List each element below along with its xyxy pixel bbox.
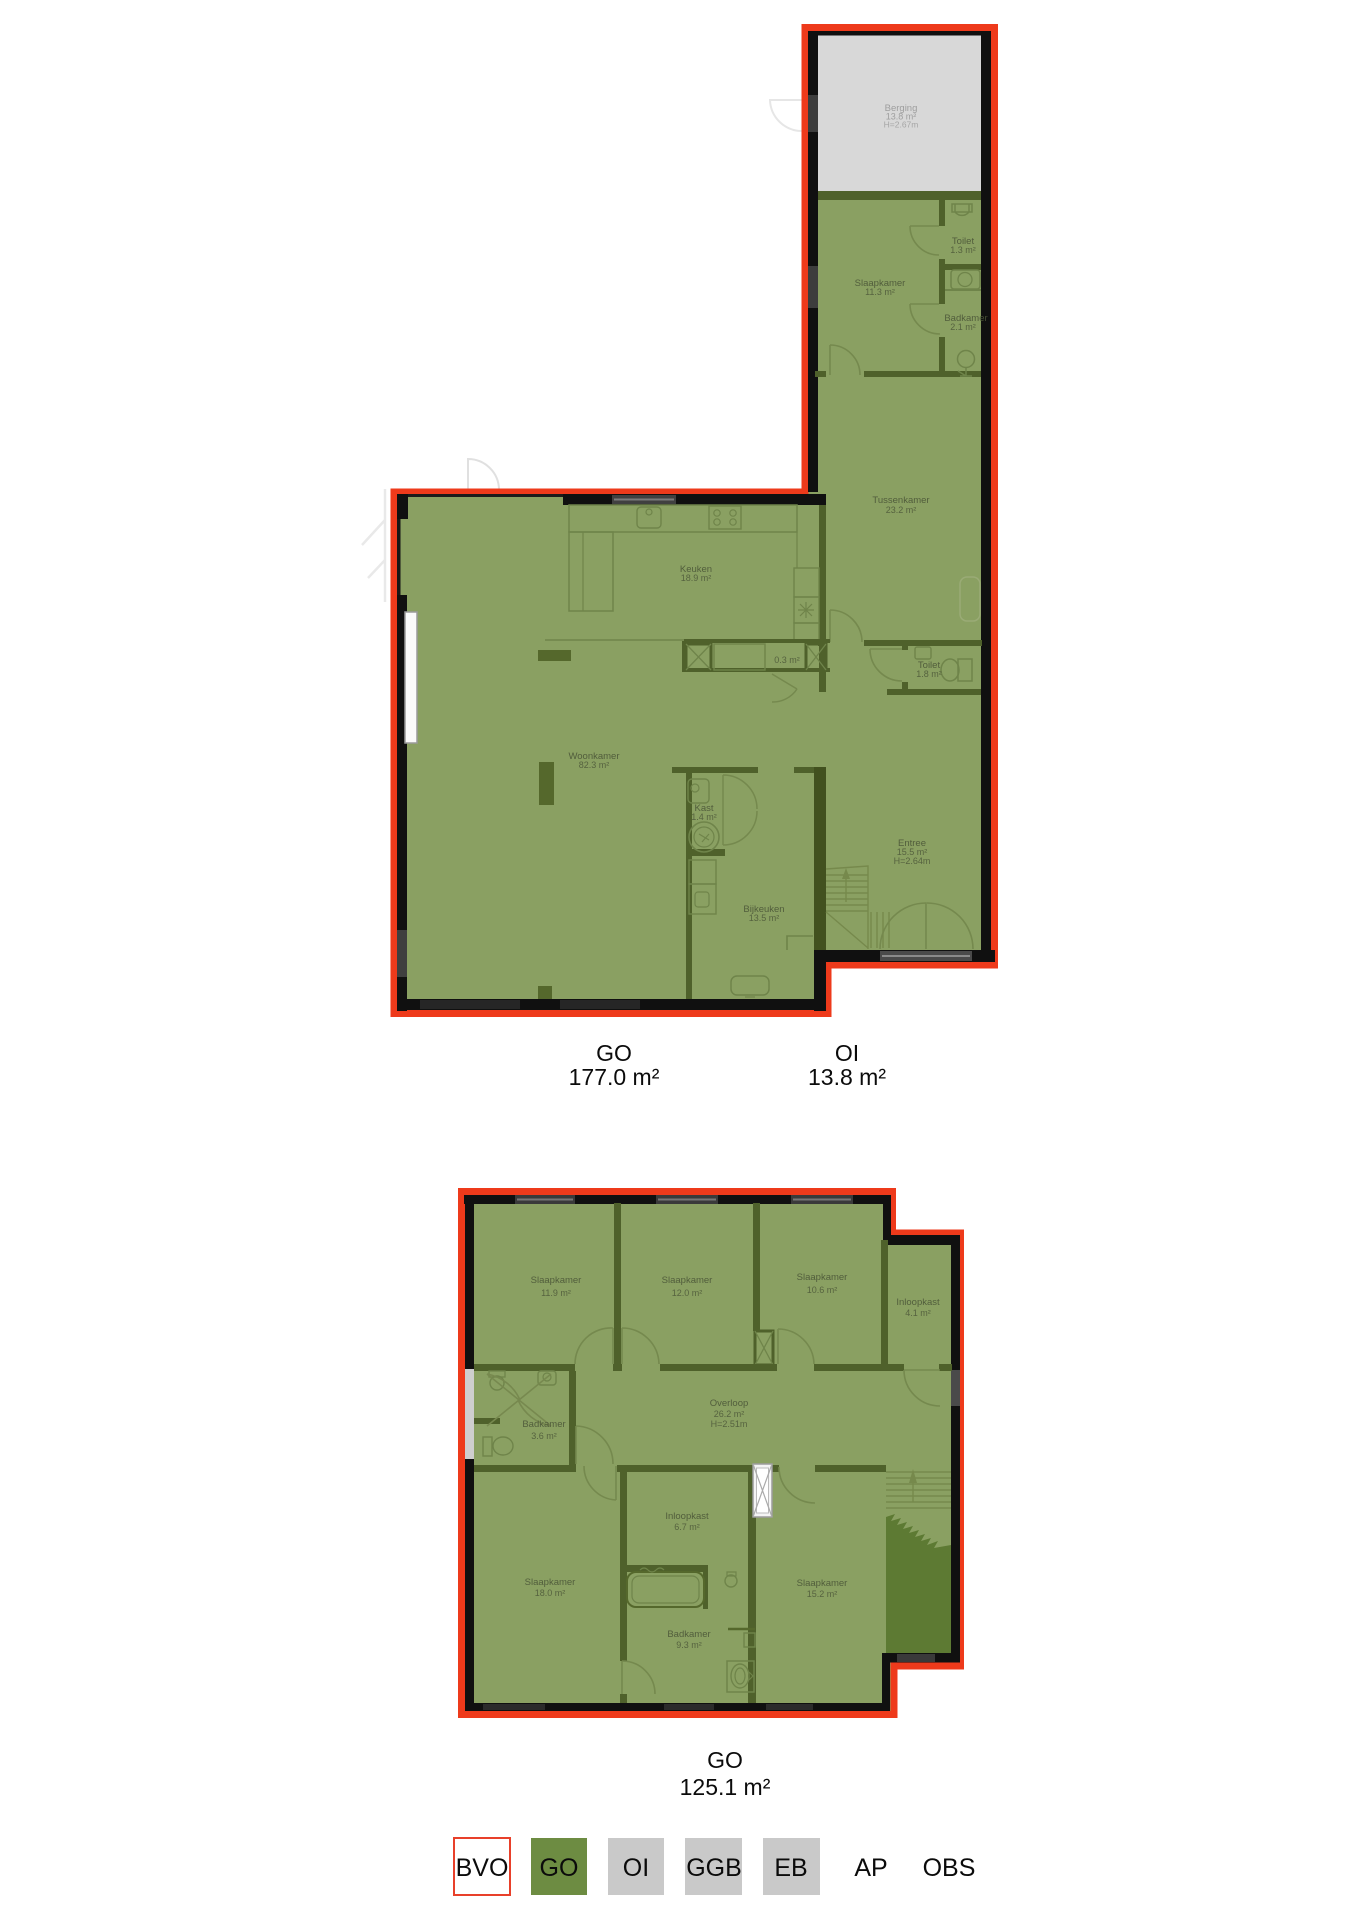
svg-text:H=2.67m: H=2.67m [884, 120, 919, 130]
svg-text:H=2.51m: H=2.51m [711, 1419, 748, 1429]
svg-text:BVO: BVO [456, 1854, 509, 1882]
svg-text:125.1 m²: 125.1 m² [680, 1774, 771, 1800]
svg-text:GO: GO [540, 1854, 579, 1882]
svg-text:Overloop: Overloop [710, 1398, 749, 1409]
svg-text:H=2.64m: H=2.64m [894, 856, 931, 866]
svg-text:9.3 m²: 9.3 m² [676, 1640, 702, 1650]
svg-text:11.9 m²: 11.9 m² [541, 1288, 571, 1298]
svg-text:AP: AP [854, 1854, 887, 1882]
svg-text:26.2 m²: 26.2 m² [714, 1409, 745, 1419]
svg-text:2.1 m²: 2.1 m² [950, 322, 976, 332]
svg-text:Slaapkamer: Slaapkamer [797, 1272, 848, 1283]
svg-text:82.3 m²: 82.3 m² [579, 760, 610, 770]
svg-text:0.3 m²: 0.3 m² [774, 655, 800, 665]
svg-text:Slaapkamer: Slaapkamer [797, 1578, 848, 1589]
svg-text:13.8 m²: 13.8 m² [808, 1064, 886, 1090]
svg-text:12.0 m²: 12.0 m² [672, 1288, 703, 1298]
svg-text:Inloopkast: Inloopkast [665, 1511, 709, 1522]
svg-text:Badkamer: Badkamer [667, 1629, 710, 1640]
svg-text:Slaapkamer: Slaapkamer [662, 1275, 713, 1286]
svg-text:Slaapkamer: Slaapkamer [525, 1577, 576, 1588]
svg-text:1.8 m²: 1.8 m² [916, 669, 942, 679]
svg-text:EB: EB [774, 1854, 807, 1882]
svg-text:Slaapkamer: Slaapkamer [531, 1275, 582, 1286]
svg-text:18.0 m²: 18.0 m² [535, 1588, 566, 1598]
svg-text:1.4 m²: 1.4 m² [691, 812, 717, 822]
svg-text:23.2 m²: 23.2 m² [886, 505, 917, 515]
svg-text:GO: GO [707, 1747, 743, 1773]
svg-text:4.1 m²: 4.1 m² [905, 1308, 931, 1318]
svg-text:6.7 m²: 6.7 m² [674, 1522, 700, 1532]
svg-text:18.9 m²: 18.9 m² [681, 573, 712, 583]
svg-text:GGB: GGB [686, 1854, 742, 1882]
svg-text:13.5 m²: 13.5 m² [749, 913, 780, 923]
svg-text:11.3 m²: 11.3 m² [865, 287, 895, 297]
svg-text:OBS: OBS [923, 1854, 976, 1882]
svg-text:177.0 m²: 177.0 m² [569, 1064, 660, 1090]
svg-text:1.3 m²: 1.3 m² [950, 245, 976, 255]
svg-text:Inloopkast: Inloopkast [896, 1297, 940, 1308]
svg-text:OI: OI [623, 1854, 649, 1882]
svg-text:Badkamer: Badkamer [522, 1419, 565, 1430]
svg-text:15.2 m²: 15.2 m² [807, 1589, 838, 1599]
svg-text:10.6 m²: 10.6 m² [807, 1285, 838, 1295]
svg-text:OI: OI [835, 1040, 859, 1066]
svg-text:GO: GO [596, 1040, 632, 1066]
svg-text:3.6 m²: 3.6 m² [531, 1431, 557, 1441]
